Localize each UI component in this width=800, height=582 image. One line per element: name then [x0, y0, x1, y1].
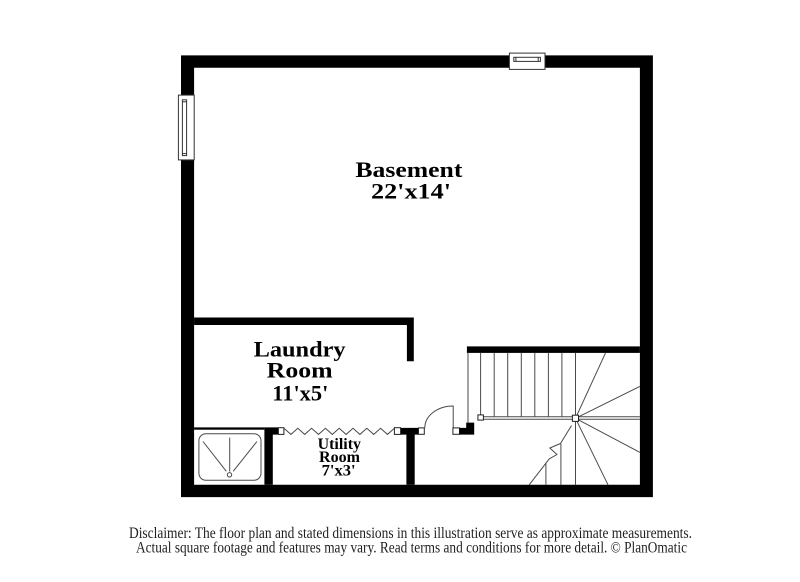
- svg-text:Room: Room: [267, 357, 333, 382]
- svg-text:7'x3': 7'x3': [322, 462, 356, 479]
- svg-text:22'x14': 22'x14': [371, 179, 451, 204]
- svg-text:11'x5': 11'x5': [272, 380, 328, 405]
- svg-text:Actual square footage and feat: Actual square footage and features may v…: [136, 540, 687, 557]
